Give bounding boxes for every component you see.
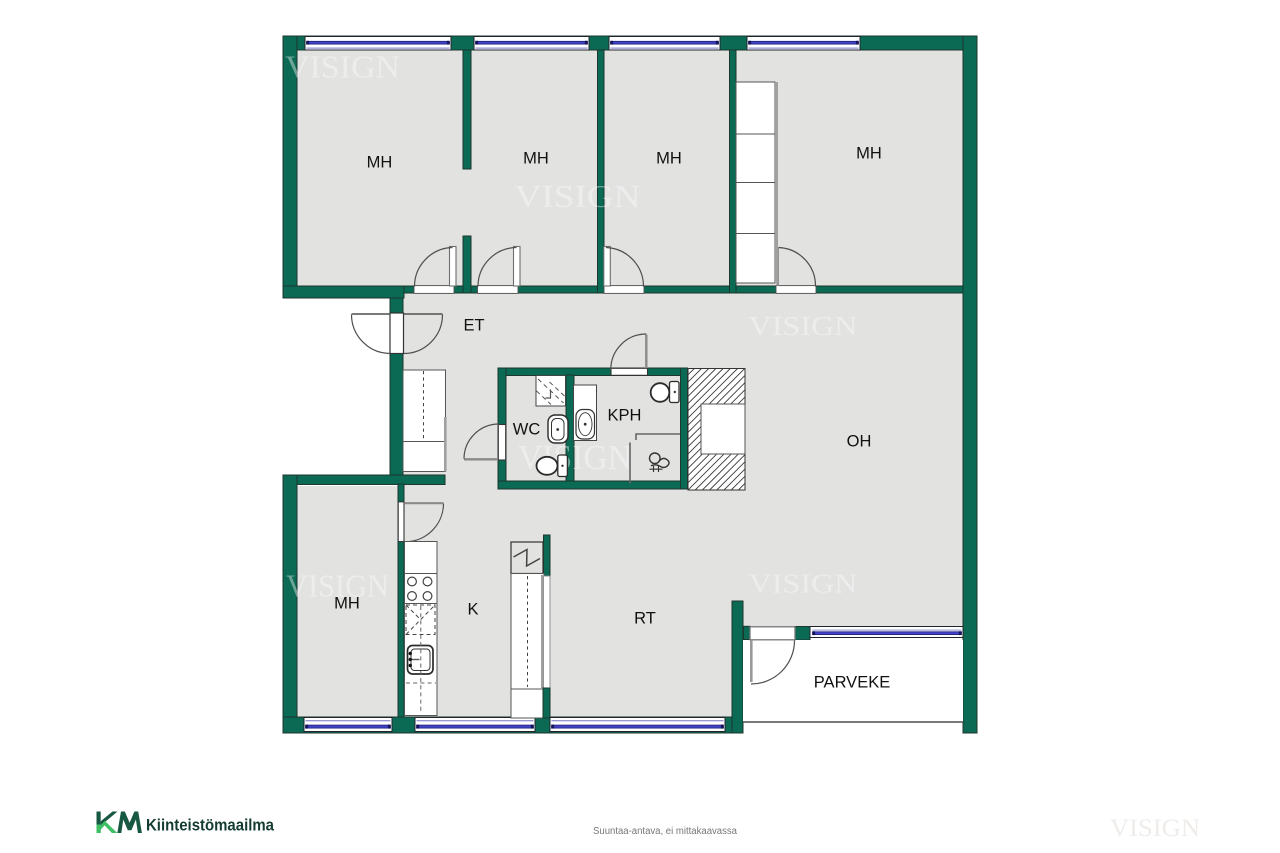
svg-text:OH: OH <box>847 433 872 451</box>
svg-text:K: K <box>467 601 478 619</box>
svg-text:RT: RT <box>634 610 656 628</box>
svg-text:MH: MH <box>367 154 393 172</box>
svg-text:PARVEKE: PARVEKE <box>814 674 890 692</box>
svg-text:ET: ET <box>463 317 484 335</box>
svg-text:VISIGN: VISIGN <box>518 439 632 477</box>
svg-text:MH: MH <box>856 145 882 163</box>
svg-text:Kiinteistömaailma: Kiinteistömaailma <box>146 817 275 835</box>
svg-text:Suuntaa-antava, ei mittakaavas: Suuntaa-antava, ei mittakaavassa <box>593 826 737 837</box>
svg-text:MH: MH <box>656 150 682 168</box>
svg-text:KPH: KPH <box>608 407 642 425</box>
svg-text:WC: WC <box>513 421 541 439</box>
svg-text:VISIGN: VISIGN <box>1110 815 1200 842</box>
svg-text:MH: MH <box>334 595 360 613</box>
svg-text:VISIGN: VISIGN <box>749 310 858 341</box>
svg-text:VISIGN: VISIGN <box>749 568 858 599</box>
svg-text:MH: MH <box>523 150 549 168</box>
svg-text:VISIGN: VISIGN <box>515 178 641 214</box>
svg-text:VISIGN: VISIGN <box>285 49 400 85</box>
